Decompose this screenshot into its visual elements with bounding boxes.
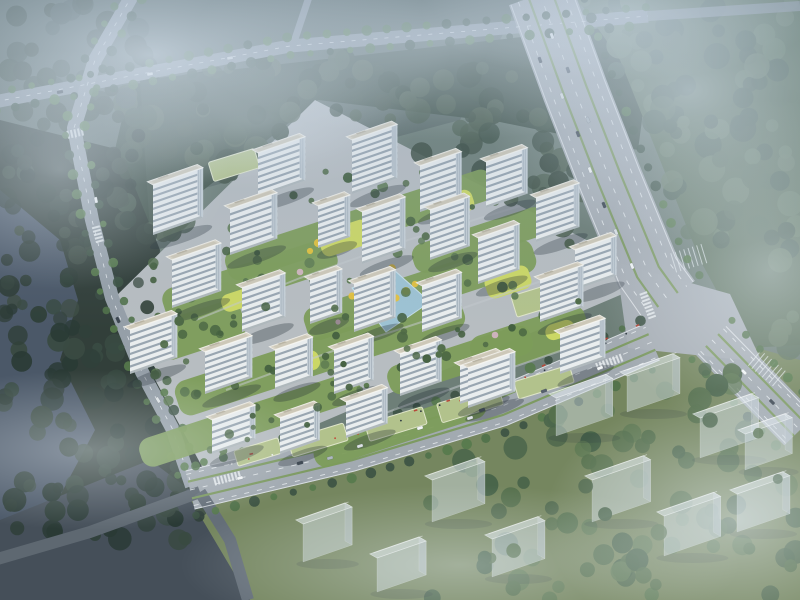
aerial-rendering [0, 0, 800, 600]
atmosphere-cast [0, 0, 800, 600]
aerial-rendering-canvas [0, 0, 800, 600]
